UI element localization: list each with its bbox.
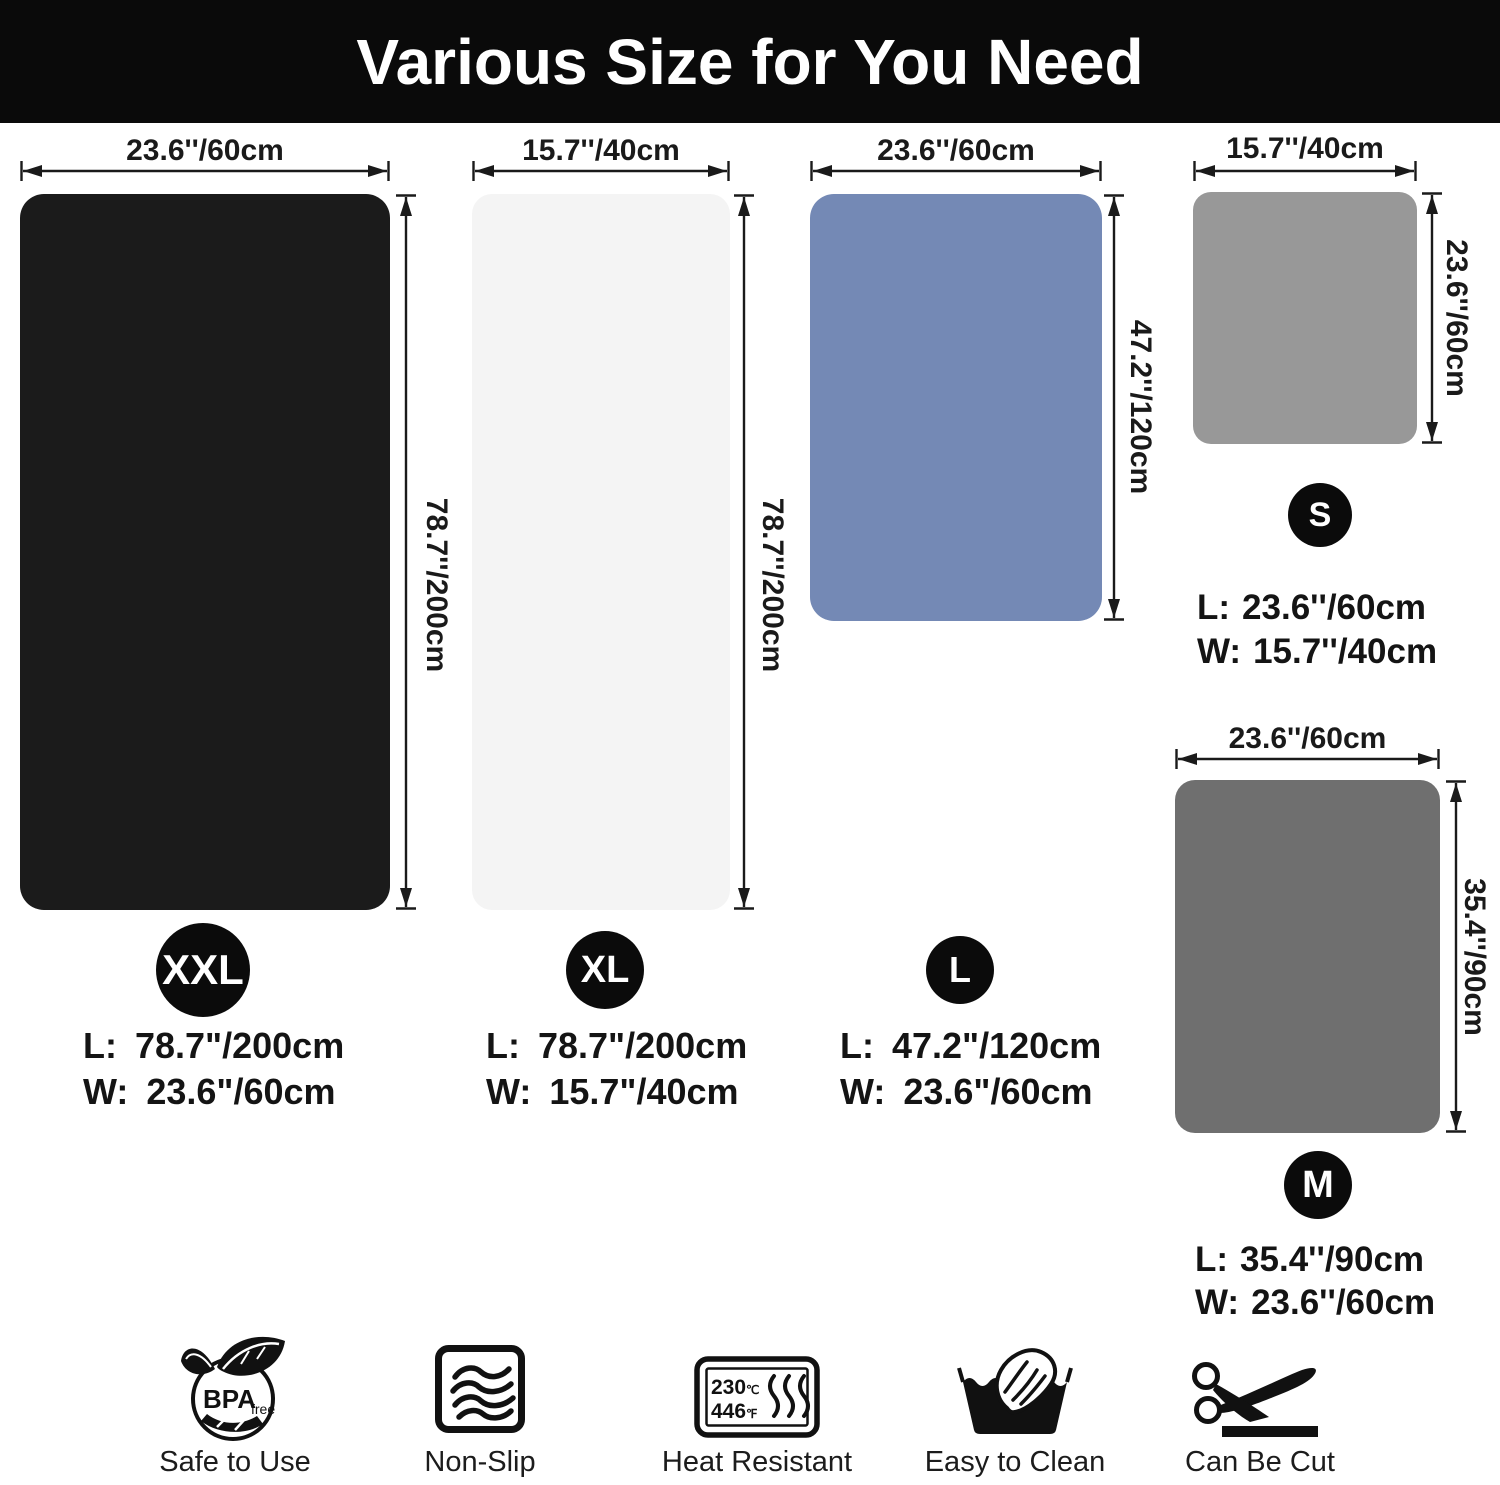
l-length-label: 47.2''/120cm: [1123, 320, 1157, 494]
l-width-arrow: [810, 161, 1102, 181]
xxl-length-label: 78.7''/200cm: [419, 498, 453, 672]
product-size-infographic: Various Size for You Need 23.6''/60cm 78…: [0, 0, 1500, 1485]
xl-length-spec: L:78.7"/200cm: [486, 1023, 747, 1069]
feature-label-can-be-cut: Can Be Cut: [1140, 1446, 1380, 1479]
m-specs: L:35.4''/90cm W:23.6''/60cm: [1195, 1238, 1435, 1324]
xxl-width-arrow: [20, 161, 390, 181]
xl-length-arrow: [734, 194, 754, 910]
s-width-spec: W:15.7''/40cm: [1197, 630, 1437, 674]
svg-text:BPA: BPA: [203, 1384, 256, 1414]
mat-s: [1193, 192, 1417, 444]
l-length-arrow: [1104, 194, 1124, 621]
size-badge-l: L: [926, 936, 994, 1004]
heat-resistant-icon: 230℃ 446℉: [694, 1356, 820, 1438]
svg-text:free: free: [251, 1401, 275, 1417]
size-badge-m: M: [1284, 1151, 1352, 1219]
m-length-spec: L:35.4''/90cm: [1195, 1238, 1435, 1281]
xl-width-arrow: [472, 161, 730, 181]
size-badge-xxl: XXL: [156, 923, 250, 1017]
feature-label-easy-to-clean: Easy to Clean: [895, 1446, 1135, 1479]
s-length-label: 23.6''/60cm: [1439, 239, 1473, 397]
header-banner: Various Size for You Need: [0, 0, 1500, 123]
xl-specs: L:78.7"/200cm W:15.7"/40cm: [486, 1023, 747, 1115]
feature-label-heat-resistant: Heat Resistant: [637, 1446, 877, 1479]
m-width-arrow: [1175, 749, 1440, 769]
l-length-spec: L:47.2"/120cm: [840, 1023, 1101, 1069]
s-width-arrow: [1193, 161, 1417, 181]
xxl-width-spec: W:23.6"/60cm: [83, 1069, 344, 1115]
xxl-length-spec: L:78.7"/200cm: [83, 1023, 344, 1069]
xl-length-label: 78.7''/200cm: [755, 498, 789, 672]
mat-xxl: [20, 194, 390, 910]
xxl-length-arrow: [396, 194, 416, 910]
feature-label-non-slip: Non-Slip: [360, 1446, 600, 1479]
mat-l: [810, 194, 1102, 621]
xxl-specs: L:78.7"/200cm W:23.6"/60cm: [83, 1023, 344, 1115]
bpa-free-icon: BPA free: [179, 1331, 291, 1443]
page-title: Various Size for You Need: [356, 25, 1143, 99]
s-length-spec: L:23.6''/60cm: [1197, 586, 1437, 630]
size-badge-xl: XL: [566, 931, 644, 1009]
non-slip-icon: [434, 1344, 526, 1434]
easy-to-clean-icon: [955, 1334, 1075, 1437]
mat-xl: [472, 194, 730, 910]
can-be-cut-icon: [1190, 1360, 1330, 1444]
s-specs: L:23.6''/60cm W:15.7''/40cm: [1197, 586, 1437, 674]
m-length-label: 35.4''/90cm: [1457, 878, 1491, 1036]
mat-m: [1175, 780, 1440, 1133]
l-specs: L:47.2"/120cm W:23.6"/60cm: [840, 1023, 1101, 1115]
xl-width-spec: W:15.7"/40cm: [486, 1069, 747, 1115]
feature-label-safe-to-use: Safe to Use: [115, 1446, 355, 1479]
size-badge-s: S: [1288, 483, 1352, 547]
l-width-spec: W:23.6"/60cm: [840, 1069, 1101, 1115]
m-width-spec: W:23.6''/60cm: [1195, 1281, 1435, 1324]
